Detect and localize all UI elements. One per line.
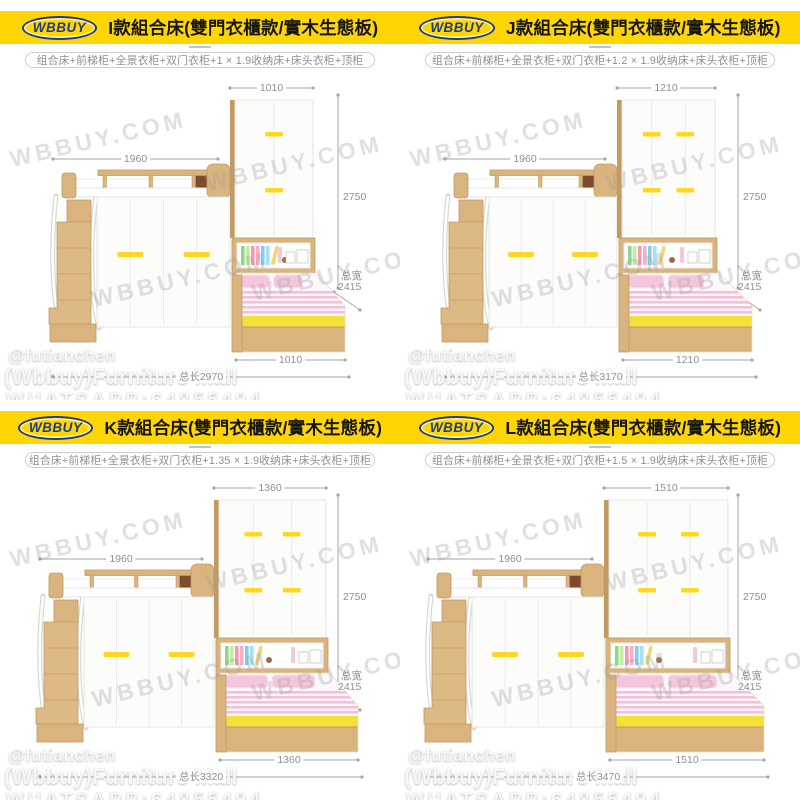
brand-text: WBBUY — [33, 21, 87, 35]
dim-height: 2750 — [343, 592, 366, 603]
dim-loft-length: 1960 — [106, 554, 135, 565]
dim-loft-length: 1960 — [121, 154, 150, 165]
divider-dash — [189, 46, 211, 48]
dim-depth: 2415 — [338, 282, 361, 293]
dim-wardrobe-width: 1210 — [651, 83, 680, 94]
furniture-illustration: WBBUY.COM WBBUY.COM WBBUY.COM WBBUY.COM … — [400, 470, 800, 800]
component-list: 组合床+前梯柜+全景衣柜+双门衣柜+1 × 1.9收纳床+床头衣柜+顶柜 — [25, 52, 375, 68]
product-panel-i: WBBUY I款組合床(雙門衣櫃款/實木生態板) 组合床+前梯柜+全景衣柜+双门… — [0, 0, 400, 400]
watermark-whatsapp: WHATSAPP:64855494 — [6, 390, 264, 400]
dim-bed-width: 1210 — [673, 355, 702, 366]
furniture-illustration: WBBUY.COM WBBUY.COM WBBUY.COM WBBUY.COM … — [0, 70, 400, 400]
divider-dash — [589, 446, 611, 448]
dim-depth-label: 总宽 — [341, 271, 362, 282]
banner: WBBUY L款組合床(雙門衣櫃款/實木生態板) — [400, 411, 800, 444]
brand-text: WBBUY — [430, 21, 484, 35]
watermark-handle: @futianchen — [8, 346, 116, 366]
brand-text: WBBUY — [29, 421, 83, 435]
product-panel-k: WBBUY K款組合床(雙門衣櫃款/實木生態板) 组合床+前梯柜+全景衣柜+双门… — [0, 400, 400, 800]
banner: WBBUY I款組合床(雙門衣櫃款/實木生態板) — [0, 11, 400, 44]
dim-bed-width: 1510 — [672, 755, 701, 766]
wbbuy-logo: WBBUY — [18, 416, 94, 440]
watermark-whatsapp: WHATSAPP:64855494 — [6, 790, 264, 800]
divider-dash — [189, 446, 211, 448]
dim-wardrobe-width: 1510 — [651, 483, 680, 494]
product-panel-j: WBBUY J款組合床(雙門衣櫃款/實木生態板) 组合床+前梯柜+全景衣柜+双门… — [400, 0, 800, 400]
dim-depth: 2415 — [338, 682, 361, 693]
watermark-whatsapp: WHATSAPP:64855494 — [406, 790, 664, 800]
dim-loft-length: 1960 — [495, 554, 524, 565]
furniture-illustration: WBBUY.COM WBBUY.COM WBBUY.COM WBBUY.COM … — [400, 70, 800, 400]
watermark-handle: @futianchen — [408, 346, 516, 366]
component-list: 组合床+前梯柜+全景衣柜+双门衣柜+1.35 × 1.9收纳床+床头衣柜+顶柜 — [25, 452, 375, 468]
dim-height: 2750 — [743, 592, 766, 603]
watermark-whatsapp: WHATSAPP:64855494 — [406, 390, 664, 400]
dim-wardrobe-width: 1010 — [257, 83, 286, 94]
product-panel-l: WBBUY L款組合床(雙門衣櫃款/實木生態板) 组合床+前梯柜+全景衣柜+双门… — [400, 400, 800, 800]
dim-depth-label: 总宽 — [741, 671, 762, 682]
dim-depth-label: 总宽 — [341, 671, 362, 682]
divider-dash — [589, 46, 611, 48]
product-sheet: WBBUY I款組合床(雙門衣櫃款/實木生態板) 组合床+前梯柜+全景衣柜+双门… — [0, 0, 800, 800]
dim-total-length: 总长3470 — [573, 772, 623, 783]
dim-depth-label: 总宽 — [741, 271, 762, 282]
dim-bed-width: 1010 — [276, 355, 305, 366]
dim-depth: 2415 — [738, 282, 761, 293]
panel-title: L款組合床(雙門衣櫃款/實木生態板) — [505, 415, 781, 440]
dim-total-length: 总长3170 — [575, 372, 625, 383]
wbbuy-logo: WBBUY — [22, 16, 98, 40]
panel-title: K款組合床(雙門衣櫃款/實木生態板) — [104, 415, 382, 440]
brand-text: WBBUY — [430, 421, 484, 435]
dim-total-length: 总长3320 — [176, 772, 226, 783]
dim-depth: 2415 — [738, 682, 761, 693]
dim-wardrobe-width: 1360 — [255, 483, 284, 494]
dim-bed-width: 1360 — [274, 755, 303, 766]
dim-height: 2750 — [743, 192, 766, 203]
component-list: 组合床+前梯柜+全景衣柜+双门衣柜+1.2 × 1.9收纳床+床头衣柜+顶柜 — [425, 52, 775, 68]
panel-title: J款組合床(雙門衣櫃款/實木生態板) — [506, 15, 781, 40]
dim-height: 2750 — [343, 192, 366, 203]
component-list: 组合床+前梯柜+全景衣柜+双门衣柜+1.5 × 1.9收纳床+床头衣柜+顶柜 — [425, 452, 775, 468]
wbbuy-logo: WBBUY — [419, 16, 495, 40]
wbbuy-logo: WBBUY — [419, 416, 495, 440]
dim-total-length: 总长2970 — [176, 372, 226, 383]
furniture-illustration: WBBUY.COM WBBUY.COM WBBUY.COM WBBUY.COM … — [0, 470, 400, 800]
banner: WBBUY K款組合床(雙門衣櫃款/實木生態板) — [0, 411, 400, 444]
watermark-handle: @futianchen — [8, 746, 116, 766]
panel-title: I款組合床(雙門衣櫃款/實木生態板) — [108, 15, 378, 40]
banner: WBBUY J款組合床(雙門衣櫃款/實木生態板) — [400, 11, 800, 44]
watermark-handle: @futianchen — [408, 746, 516, 766]
dim-loft-length: 1960 — [510, 154, 539, 165]
